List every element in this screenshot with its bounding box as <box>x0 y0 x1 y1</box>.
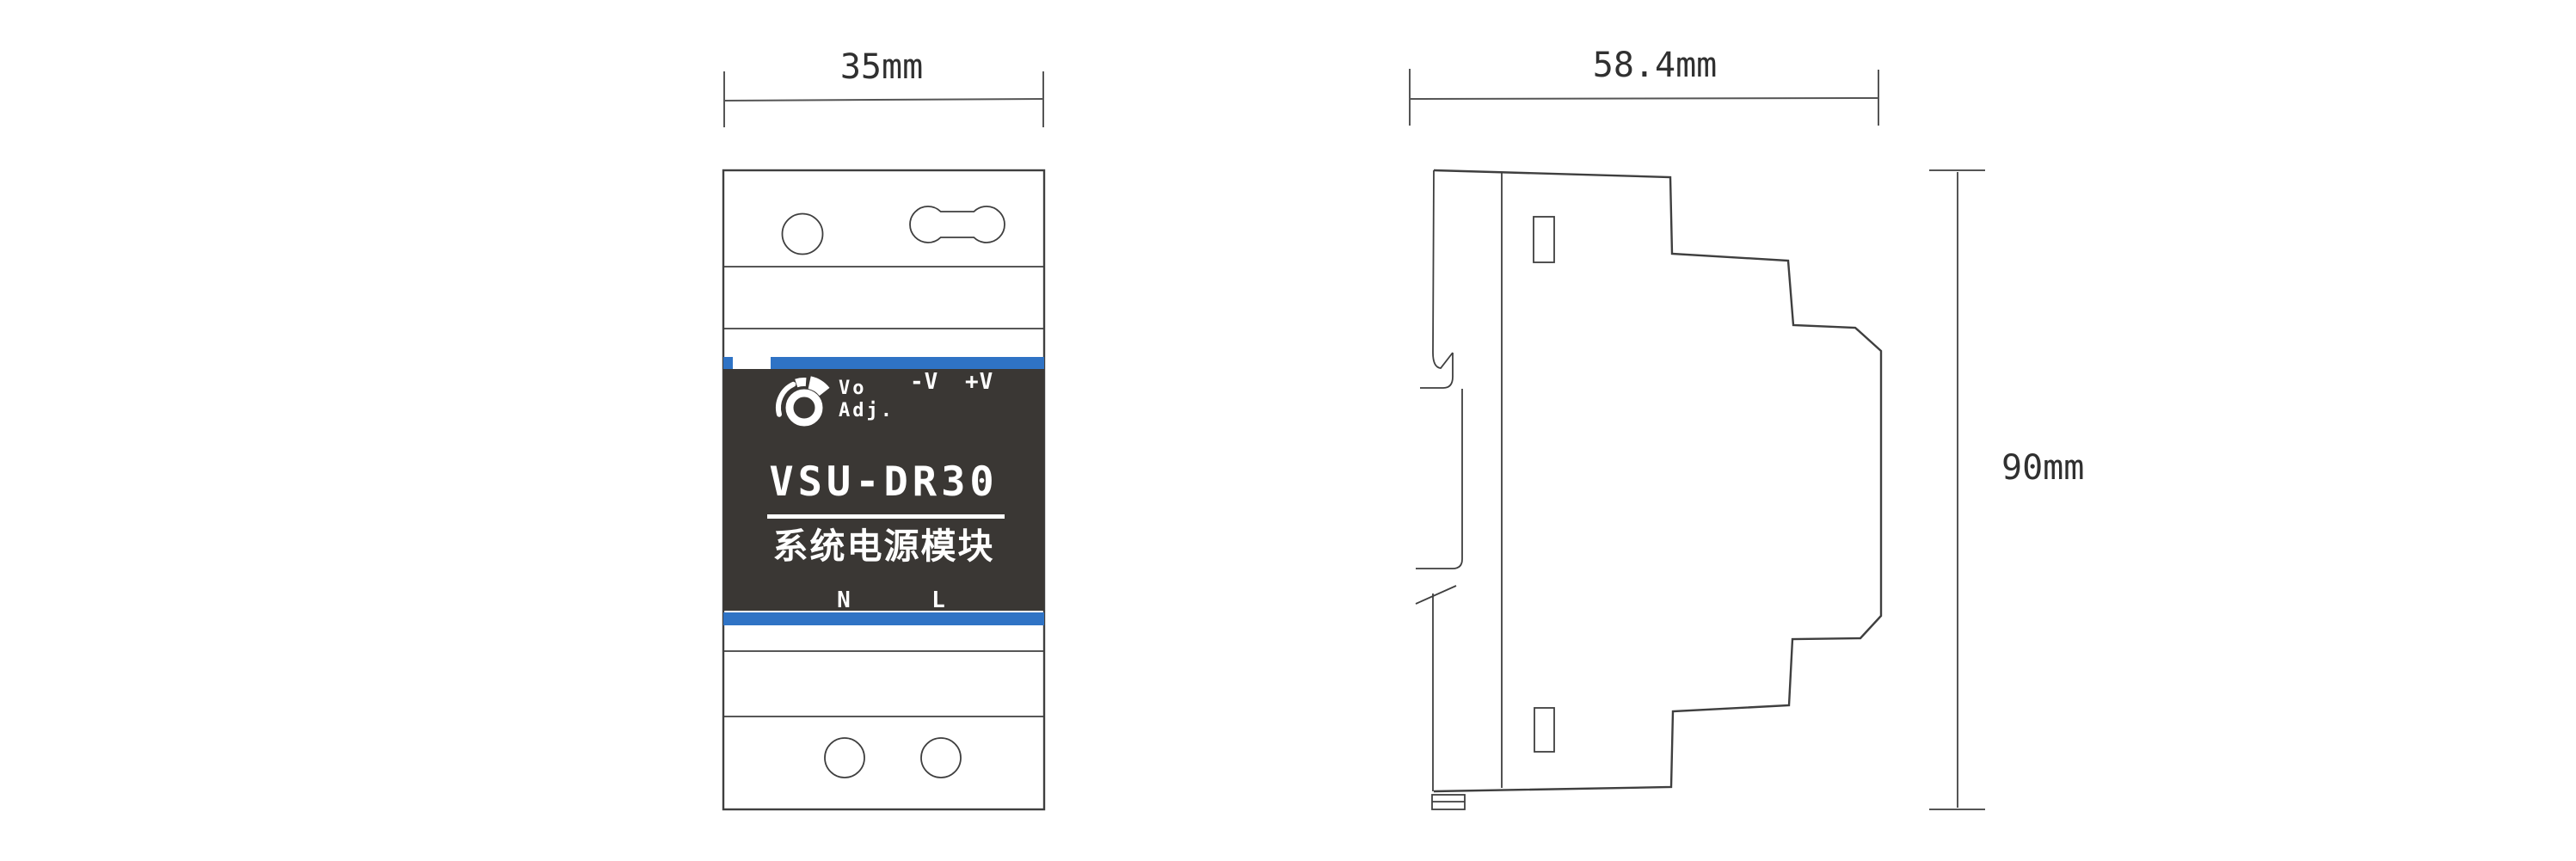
side-profile-outline <box>1434 170 1881 791</box>
knob-label-vo: Vo <box>839 379 867 398</box>
mounting-hole-round <box>783 214 823 255</box>
dim-line <box>724 99 1043 101</box>
din-rail-clip <box>1416 170 1465 809</box>
mounting-slot-dumbbell <box>910 206 1005 243</box>
model-name: VSU-DR30 <box>723 462 1044 502</box>
vent-slot-bottom <box>1534 708 1554 752</box>
knob-label-adj: Adj. <box>839 402 895 421</box>
technical-drawing: 35mm 58.4mm 90mm Vo Adj. -V +V VSU-DR30 … <box>0 0 2576 861</box>
clip-upper-edge <box>1433 170 1453 368</box>
side-height-dimension-label: 90mm <box>2001 451 2084 485</box>
clip-spring-diagonal <box>1416 586 1456 604</box>
output-negative-label: -V <box>910 371 938 393</box>
blue-stripe-top <box>723 357 1044 369</box>
front-width-dimension-label: 35mm <box>821 50 942 84</box>
drawing-lines <box>0 0 2576 861</box>
label-divider-rule <box>767 514 1005 519</box>
blue-stripe-bottom <box>723 612 1044 625</box>
output-positive-label: +V <box>965 371 993 393</box>
input-live-label: L <box>925 589 951 612</box>
blue-stripe-notch <box>733 357 771 369</box>
terminal-hole-l <box>921 738 961 778</box>
input-neutral-label: N <box>831 589 857 612</box>
dim-line <box>1410 98 1878 99</box>
product-name-cn: 系统电源模块 <box>723 529 1044 564</box>
knob-arc-segment-2 <box>796 382 806 383</box>
rail-slot-wall <box>1416 389 1462 569</box>
side-view-drawing <box>1410 69 1985 809</box>
side-height-dimension <box>1929 170 1985 809</box>
side-depth-dimension-label: 58.4mm <box>1569 48 1741 83</box>
front-view-drawing <box>723 71 1044 809</box>
terminal-hole-n <box>825 738 864 778</box>
vent-slot-top <box>1534 217 1554 262</box>
